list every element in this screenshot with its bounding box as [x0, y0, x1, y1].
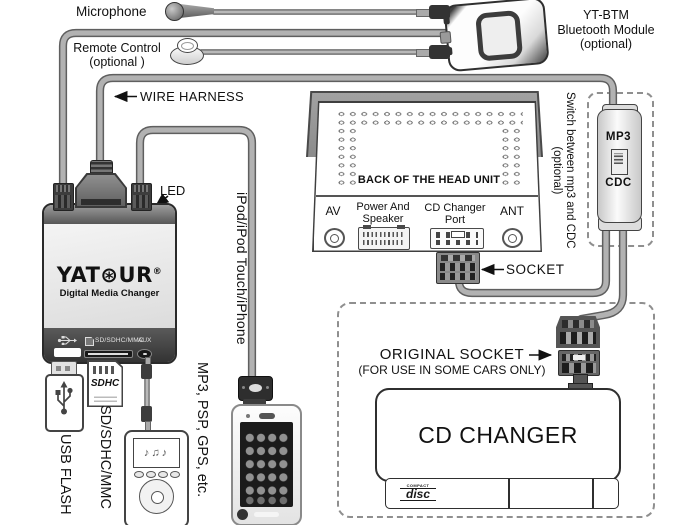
power-speaker-connector [358, 227, 410, 250]
yatour-tagline: Digital Media Changer [44, 288, 175, 299]
iphone-icon [231, 404, 302, 525]
remote-plug-icon [416, 45, 450, 59]
socket-connector [436, 252, 480, 284]
head-unit-divider [316, 195, 538, 197]
ant-jack-icon [502, 228, 523, 248]
switch-slider[interactable] [611, 149, 628, 175]
original-socket-connector [558, 350, 600, 376]
microphone-plug-icon [416, 5, 450, 19]
head-unit-title: BACK OF THE HEAD UNIT [330, 174, 528, 186]
yatour-ports-label: SD/SDHC/MMC [95, 337, 144, 344]
yatour-aux-label: AUX [138, 337, 151, 344]
cd-changer-port-connector [430, 228, 484, 249]
socket-label: SOCKET [506, 262, 565, 277]
remote-control-icon [170, 38, 204, 65]
yatour-device: YAT⊛UR® Digital Media Changer SD/SDHC/MM… [42, 203, 177, 364]
av-label: AV [320, 204, 346, 218]
ant-label: ANT [497, 204, 527, 218]
usb-flash-label: USB FLASH [57, 434, 73, 515]
harness-db-connector [75, 173, 127, 208]
bluetooth-module-label: YT-BTMBluetooth Module(optional) [548, 8, 664, 52]
usb-icon [57, 336, 77, 345]
ipod-cable-plug [131, 183, 152, 211]
music-notes-icon: ♪♫♪ [144, 447, 169, 459]
wire-harness-label: WIRE HARNESS [140, 89, 244, 104]
bluetooth-module [443, 0, 549, 72]
yatour-logo: YAT⊛UR® [44, 263, 175, 287]
sd-slot[interactable] [84, 350, 133, 358]
cd-changer-box: CD CHANGER [375, 388, 621, 482]
bluetooth-module-ring [475, 10, 523, 62]
yatour-port-panel: SD/SDHC/MMC AUX [44, 328, 175, 362]
aux-cable-top-jack [141, 357, 153, 380]
aux-cable-bottom-jack [141, 406, 153, 432]
av-jack-icon [324, 228, 345, 248]
sdhc-logo: SDHC [89, 378, 122, 389]
head-unit-vents-top [336, 110, 523, 127]
gear-o-icon: ⊛ [100, 263, 118, 287]
microphone-label: Microphone [76, 4, 147, 19]
mp3-player-icon: ♪♫♪ [124, 430, 189, 525]
cd-changer-port-label: CD ChangerPort [423, 203, 487, 226]
compact-disc-logo: COMPACT disc [400, 483, 436, 503]
ipod-label: iPod/iPod Touch/iPhone [234, 192, 250, 345]
remote-control-label: Remote Control(optional ) [62, 42, 172, 69]
switch-cdc-label: CDC [597, 177, 640, 189]
switch-mp3-label: MP3 [597, 131, 640, 143]
original-socket-label: ORIGINAL SOCKET (FOR USE IN SOME CARS ON… [352, 346, 552, 377]
sd-card-icon: SDHC [87, 360, 123, 407]
mp3-cdc-switch: MP3 CDC [596, 104, 644, 230]
usb-slot[interactable] [54, 348, 81, 357]
switch-note-label: Switch between mp3 and CDC (optional) [550, 92, 576, 249]
usb-icon [54, 381, 74, 417]
switch-side-connector [556, 316, 600, 348]
power-speaker-label: Power AndSpeaker [350, 202, 416, 225]
sd-cards-label: SD/SDHC/MMC [97, 405, 113, 509]
cd-changer-label: CD CHANGER [377, 422, 619, 449]
usb-flash-icon [45, 361, 81, 429]
mp3-devices-label: MP3, PSP, GPS, etc. [194, 362, 210, 497]
cd-changer-tray: COMPACT disc [385, 478, 619, 509]
sd-mini-icon [85, 337, 94, 346]
led-label: LED [160, 183, 185, 198]
remote-cable-plug [53, 183, 74, 211]
wiring-diagram: BACK OF THE HEAD UNIT AV Power AndSpeake… [0, 0, 700, 525]
microphone-icon [165, 2, 215, 21]
click-wheel-icon [139, 479, 174, 514]
